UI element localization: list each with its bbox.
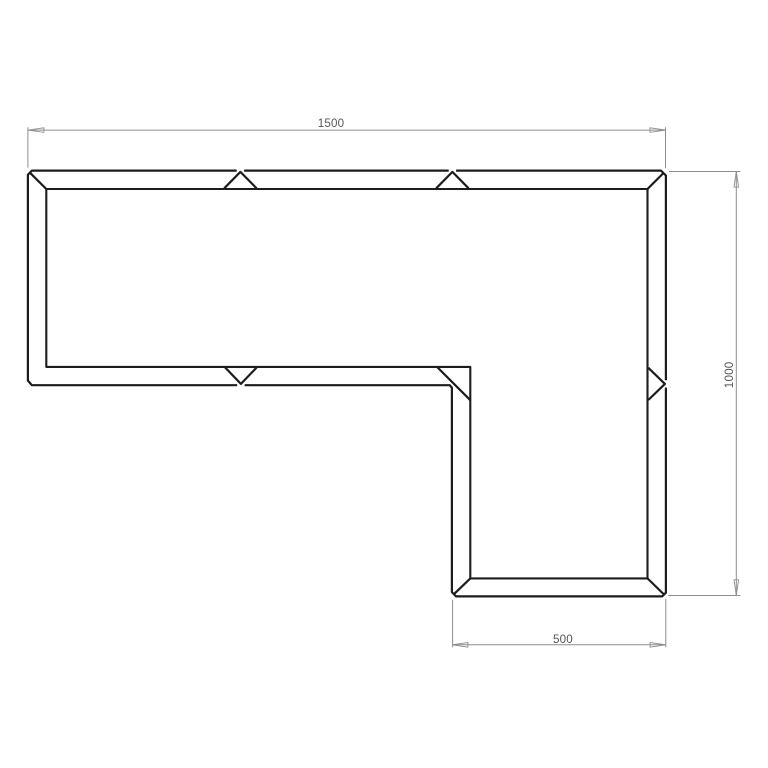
svg-text:500: 500 (553, 633, 573, 646)
svg-text:1500: 1500 (318, 117, 345, 130)
svg-text:1000: 1000 (723, 362, 736, 389)
